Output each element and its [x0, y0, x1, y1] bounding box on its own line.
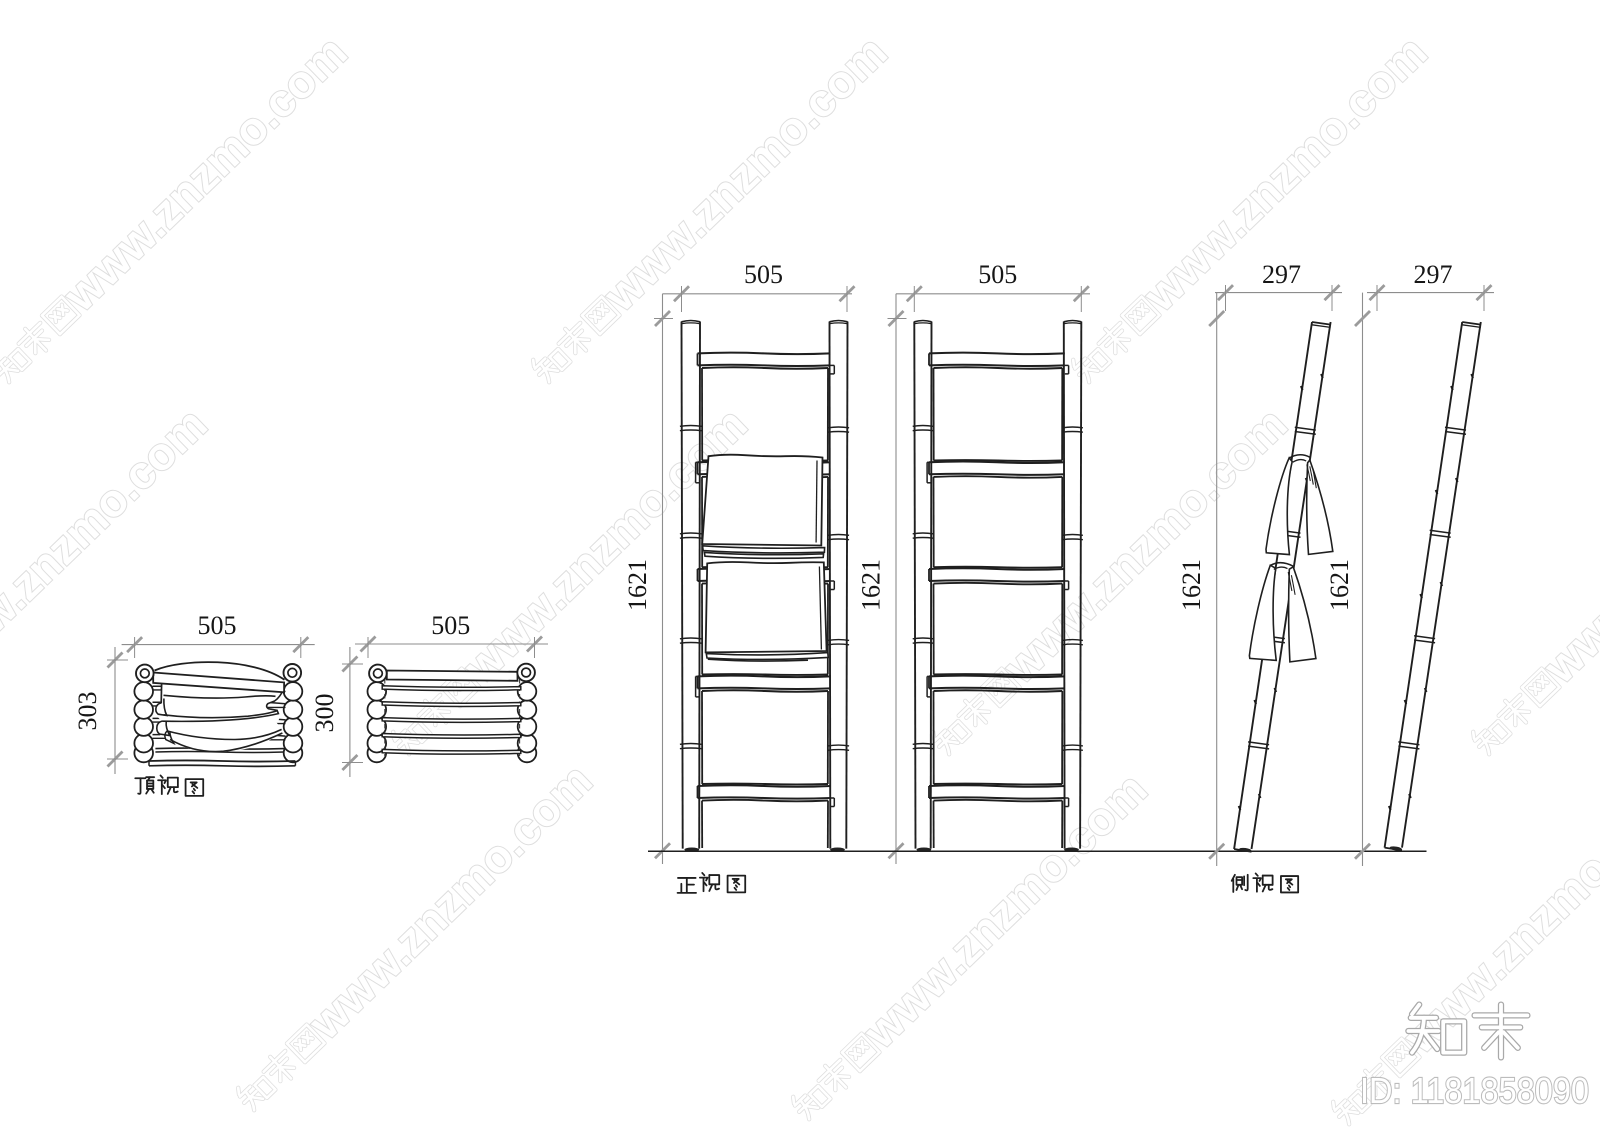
svg-text:1621: 1621: [1177, 559, 1206, 611]
svg-text:1621: 1621: [623, 559, 652, 611]
svg-text:505: 505: [978, 260, 1017, 289]
svg-text:1621: 1621: [1325, 559, 1354, 611]
svg-text:1621: 1621: [857, 559, 886, 611]
svg-text:505: 505: [198, 611, 237, 640]
svg-text:505: 505: [431, 611, 470, 640]
svg-text:297: 297: [1262, 260, 1301, 289]
svg-text:303: 303: [73, 692, 102, 731]
svg-text:297: 297: [1414, 260, 1453, 289]
svg-text:ID: 1181858090: ID: 1181858090: [1360, 1070, 1589, 1111]
svg-text:300: 300: [310, 694, 339, 733]
svg-text:505: 505: [744, 260, 783, 289]
